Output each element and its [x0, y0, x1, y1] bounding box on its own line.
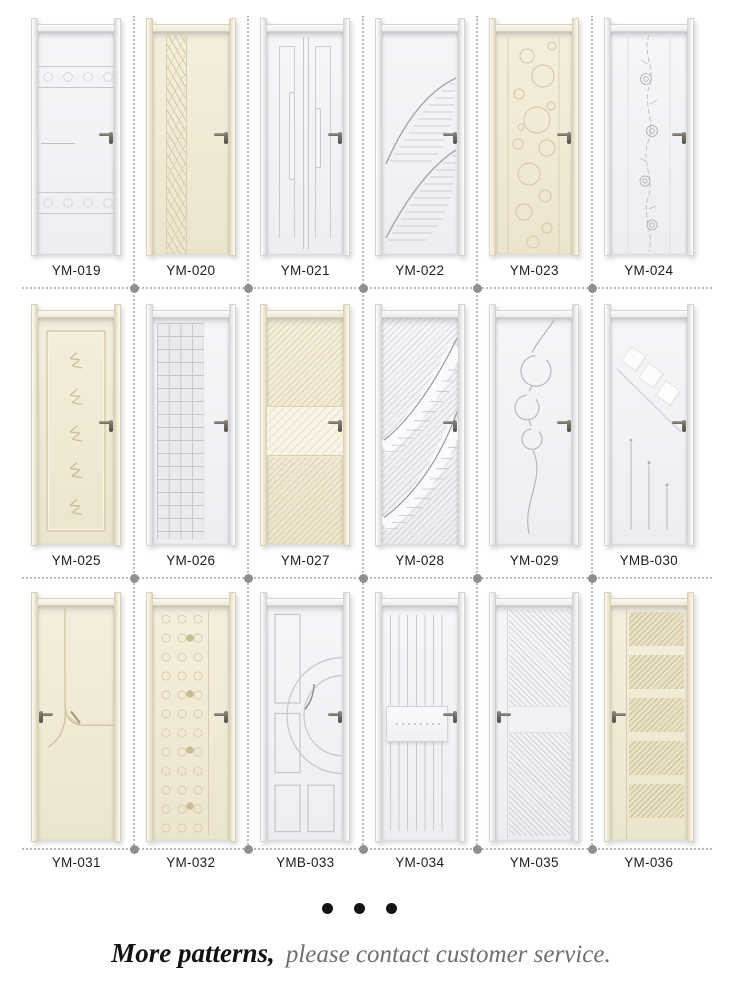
footer-note: More patterns,please contact customer se… — [0, 938, 722, 969]
catalog-row-2: YM-025 YM-026 YM-027 — [19, 304, 706, 568]
door-handle-icon — [557, 132, 572, 145]
door-leaf — [267, 318, 343, 544]
door-preview-ym-032 — [146, 592, 236, 842]
door-frame-top — [37, 598, 115, 606]
door-frame-right — [229, 18, 236, 256]
door-handle-icon — [99, 132, 114, 145]
door-preview-ym-036 — [604, 592, 694, 842]
door-frame-top — [495, 310, 573, 318]
door-frame-left — [260, 304, 267, 546]
door-leaf — [611, 318, 687, 544]
door-leaf — [267, 32, 343, 254]
door-label: YMB-033 — [276, 855, 334, 870]
more-patterns-label: More patterns, — [111, 938, 275, 968]
door-handle-icon — [328, 132, 343, 145]
grid-node-dot — [359, 284, 368, 293]
door-cell-ym-029: YM-029 — [477, 304, 592, 568]
door-cell-ym-028: YM-028 — [363, 304, 478, 568]
door-frame-right — [458, 304, 465, 546]
door-frame-right — [687, 304, 694, 546]
door-frame-right — [229, 592, 236, 842]
door-frame-top — [381, 24, 459, 32]
door-label: YM-020 — [166, 263, 215, 278]
ellipsis-dot — [354, 903, 365, 914]
door-cell-ym-036: YM-036 — [592, 592, 707, 870]
door-frame-top — [610, 598, 688, 606]
door-handle-icon — [672, 420, 687, 433]
door-cell-ym-034: YM-034 — [363, 592, 478, 870]
door-frame-top — [495, 598, 573, 606]
door-cell-ym-019: YM-019 — [19, 18, 134, 278]
door-preview-ym-024 — [604, 18, 694, 256]
door-label: YM-022 — [395, 263, 444, 278]
door-frame-top — [152, 310, 230, 318]
door-cell-ym-031: YM-031 — [19, 592, 134, 870]
door-cell-ym-021: YM-021 — [248, 18, 363, 278]
door-frame-right — [114, 304, 121, 546]
door-leaf — [153, 606, 229, 840]
door-leaf — [382, 606, 458, 840]
door-handle-icon — [443, 132, 458, 145]
ellipsis-dots — [0, 903, 718, 914]
door-label: YM-031 — [52, 855, 101, 870]
door-frame-left — [489, 304, 496, 546]
door-frame-left — [31, 304, 38, 546]
door-frame-left — [146, 592, 153, 842]
door-leaf — [496, 318, 572, 544]
door-leaf — [38, 606, 114, 840]
door-handle-icon — [214, 711, 229, 724]
door-handle-icon — [99, 420, 114, 433]
door-handle-icon — [38, 711, 53, 724]
grid-node-dot — [244, 574, 253, 583]
catalog-row-3: YM-031 YM-032 — [19, 592, 706, 870]
door-preview-ymb-033 — [260, 592, 350, 842]
door-preview-ym-031 — [31, 592, 121, 842]
door-frame-top — [381, 310, 459, 318]
door-preview-ym-025 — [31, 304, 121, 546]
grid-node-dot — [130, 574, 139, 583]
door-frame-left — [375, 592, 382, 842]
door-frame-left — [489, 592, 496, 842]
door-cell-ym-024: YM-024 — [592, 18, 707, 278]
door-frame-left — [489, 18, 496, 256]
grid-node-dot — [130, 284, 139, 293]
door-leaf — [267, 606, 343, 840]
catalog-row-1: YM-019 YM-020 YM-021 — [19, 18, 706, 278]
door-leaf — [496, 32, 572, 254]
door-handle-icon — [214, 420, 229, 433]
door-label: YM-023 — [510, 263, 559, 278]
door-frame-top — [610, 24, 688, 32]
door-handle-icon — [328, 420, 343, 433]
door-handle-icon — [328, 711, 343, 724]
ellipsis-dot — [322, 903, 333, 914]
door-frame-left — [375, 18, 382, 256]
door-label: YM-029 — [510, 553, 559, 568]
door-frame-top — [495, 24, 573, 32]
door-leaf — [153, 32, 229, 254]
door-frame-top — [37, 310, 115, 318]
door-leaf — [611, 32, 687, 254]
door-preview-ym-023 — [489, 18, 579, 256]
door-label: YM-036 — [624, 855, 673, 870]
door-cell-ymb-033: YMB-033 — [248, 592, 363, 870]
door-leaf — [38, 318, 114, 544]
door-cell-ym-026: YM-026 — [134, 304, 249, 568]
door-leaf — [153, 318, 229, 544]
door-handle-icon — [443, 711, 458, 724]
door-frame-left — [31, 18, 38, 256]
door-preview-ym-035 — [489, 592, 579, 842]
door-preview-ym-026 — [146, 304, 236, 546]
door-frame-right — [572, 592, 579, 842]
door-frame-right — [114, 18, 121, 256]
door-handle-icon — [672, 132, 687, 145]
door-frame-left — [146, 304, 153, 546]
grid-node-dot — [473, 284, 482, 293]
door-label: YM-026 — [166, 553, 215, 568]
grid-node-dot — [588, 574, 597, 583]
door-cell-ym-020: YM-020 — [134, 18, 249, 278]
door-handle-icon — [214, 132, 229, 145]
door-frame-right — [572, 18, 579, 256]
door-label: YM-028 — [395, 553, 444, 568]
door-frame-left — [604, 592, 611, 842]
door-frame-right — [114, 592, 121, 842]
door-frame-right — [572, 304, 579, 546]
door-label: YM-024 — [624, 263, 673, 278]
door-frame-right — [687, 592, 694, 842]
door-frame-right — [343, 18, 350, 256]
door-frame-right — [458, 18, 465, 256]
door-frame-left — [604, 18, 611, 256]
door-leaf — [611, 606, 687, 840]
door-leaf — [38, 32, 114, 254]
door-preview-ym-027 — [260, 304, 350, 546]
door-frame-top — [266, 310, 344, 318]
door-label: YM-034 — [395, 855, 444, 870]
door-label: YM-035 — [510, 855, 559, 870]
door-leaf — [382, 318, 458, 544]
door-frame-left — [260, 18, 267, 256]
door-frame-right — [343, 592, 350, 842]
door-handle-icon — [496, 711, 511, 724]
door-handle-icon — [443, 420, 458, 433]
grid-node-dot — [244, 284, 253, 293]
door-handle-icon — [557, 420, 572, 433]
door-leaf — [496, 606, 572, 840]
contact-service-text: please contact customer service. — [286, 941, 611, 968]
door-frame-top — [37, 24, 115, 32]
door-preview-ym-029 — [489, 304, 579, 546]
door-frame-right — [229, 304, 236, 546]
door-preview-ymb-030 — [604, 304, 694, 546]
grid-node-dot — [473, 574, 482, 583]
door-preview-ym-020 — [146, 18, 236, 256]
door-preview-ym-021 — [260, 18, 350, 256]
door-cell-ym-032: YM-032 — [134, 592, 249, 870]
door-label: YM-019 — [52, 263, 101, 278]
ellipsis-dot — [386, 903, 397, 914]
door-preview-ym-019 — [31, 18, 121, 256]
door-label: YM-021 — [281, 263, 330, 278]
door-frame-right — [687, 18, 694, 256]
door-preview-ym-028 — [375, 304, 465, 546]
door-frame-right — [458, 592, 465, 842]
door-leaf — [382, 32, 458, 254]
door-frame-top — [610, 310, 688, 318]
door-label: YMB-030 — [620, 553, 678, 568]
door-frame-left — [375, 304, 382, 546]
door-label: YM-032 — [166, 855, 215, 870]
grid-node-dot — [359, 574, 368, 583]
grid-node-dot — [588, 284, 597, 293]
door-frame-right — [343, 304, 350, 546]
door-frame-left — [31, 592, 38, 842]
door-cell-ym-023: YM-023 — [477, 18, 592, 278]
door-frame-left — [146, 18, 153, 256]
door-label: YM-027 — [281, 553, 330, 568]
door-cell-ym-035: YM-035 — [477, 592, 592, 870]
door-cell-ym-027: YM-027 — [248, 304, 363, 568]
door-cell-ym-025: YM-025 — [19, 304, 134, 568]
door-frame-top — [266, 24, 344, 32]
door-preview-ym-034 — [375, 592, 465, 842]
door-frame-top — [266, 598, 344, 606]
door-preview-ym-022 — [375, 18, 465, 256]
door-cell-ym-022: YM-022 — [363, 18, 478, 278]
door-frame-top — [152, 24, 230, 32]
door-frame-left — [604, 304, 611, 546]
door-frame-top — [381, 598, 459, 606]
door-label: YM-025 — [52, 553, 101, 568]
door-frame-left — [260, 592, 267, 842]
door-frame-top — [152, 598, 230, 606]
door-handle-icon — [611, 711, 626, 724]
door-cell-ymb-030: YMB-030 — [592, 304, 707, 568]
